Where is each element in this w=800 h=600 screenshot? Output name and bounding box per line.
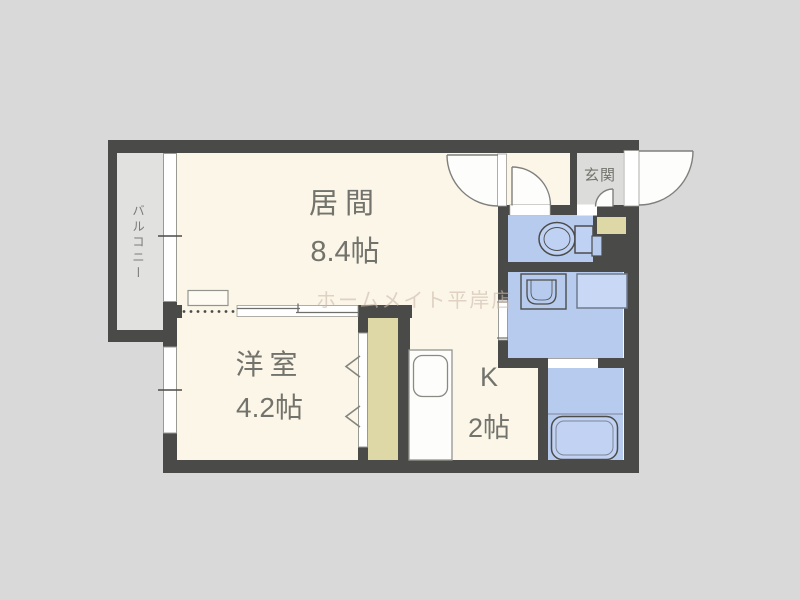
washroom-opening-dot xyxy=(501,278,504,281)
closet-chevron-icon xyxy=(346,406,360,427)
washing-machine-pan-icon xyxy=(577,274,627,308)
toilet-doorway xyxy=(510,205,550,216)
living-room-name: 居間 xyxy=(265,180,425,228)
front-door-swing xyxy=(639,151,693,205)
western-room-name: 洋室 xyxy=(192,343,347,386)
bathtub-icon xyxy=(552,417,618,460)
entrance-label: 玄関 xyxy=(577,164,623,185)
kitchen-size: 2帖 xyxy=(450,403,528,454)
living-doorway xyxy=(498,154,507,206)
living-door-swing xyxy=(447,155,498,206)
closet-folding-door xyxy=(359,333,368,447)
living-room-size: 8.4帖 xyxy=(265,228,425,276)
open-wall-dots xyxy=(183,310,235,313)
floor-plan-canvas: 居間 8.4帖 洋室 4.2帖 K 2帖 玄関 バルコニー ホームメイト平岸店 xyxy=(0,0,800,600)
living-window xyxy=(164,154,177,302)
toilet-side-unit xyxy=(592,236,602,256)
kitchen-sink-icon xyxy=(414,356,448,397)
bathroom-doorway xyxy=(548,359,598,369)
toilet-tank xyxy=(575,226,593,253)
western-room-label: 洋室 4.2帖 xyxy=(192,343,347,429)
kitchen-name: K xyxy=(450,352,528,403)
kitchen-label: K 2帖 xyxy=(450,352,528,454)
western-room-size: 4.2帖 xyxy=(192,386,347,429)
shelf xyxy=(188,291,228,306)
entrance-step xyxy=(577,205,597,216)
balcony-label: バルコニー xyxy=(128,188,147,298)
washbasin-bowl-inner xyxy=(531,280,552,300)
watermark: ホームメイト平岸店 xyxy=(316,284,513,313)
closet-chevron-icon xyxy=(346,356,360,377)
front-doorway xyxy=(624,151,639,207)
living-room-label: 居間 8.4帖 xyxy=(265,180,425,276)
